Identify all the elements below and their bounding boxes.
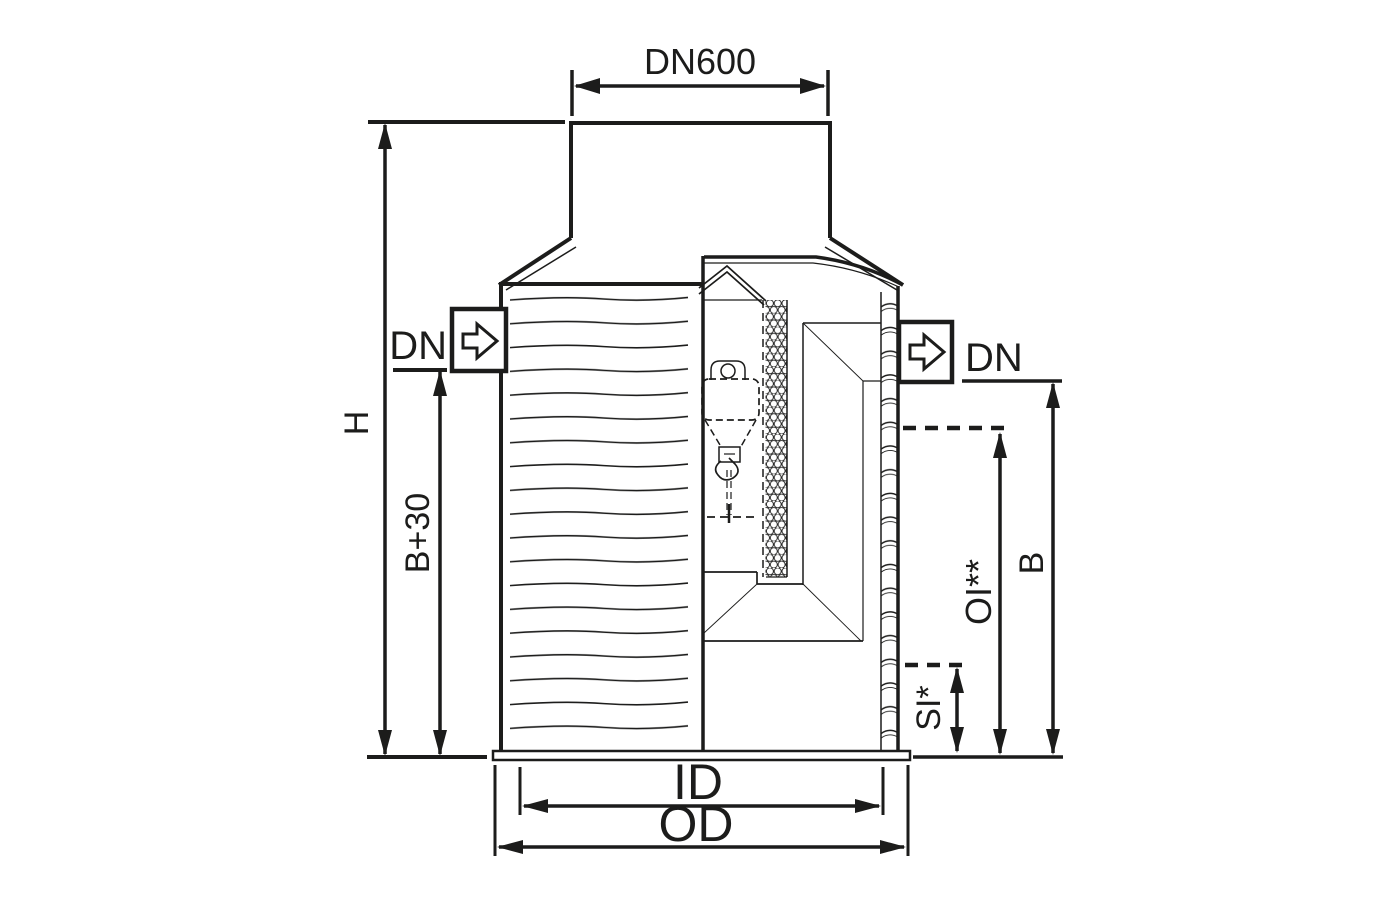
inlet-dn-label: DN [389,324,447,368]
inlet-connection [452,309,506,371]
drawing-canvas: DN600 H B+30 DN DN B OI** [0,0,1400,900]
dimension-b30: B+30 [393,370,447,756]
b-label: B [1013,552,1051,575]
corrugated-right-wall-ribs [881,294,898,746]
dn600-label: DN600 [644,41,756,82]
dimension-si: SI* [905,665,967,753]
h-label: H [338,411,376,436]
coalescing-filter-honeycomb [763,300,787,577]
oi-label: OI** [958,559,999,625]
outlet-connection [899,322,952,382]
b30-label: B+30 [399,493,437,573]
corrugated-wall-texture [506,293,693,743]
outlet-dn-label: DN [965,336,1023,380]
od-label: OD [659,796,734,852]
dimension-dn600: DN600 [572,41,828,116]
si-label: SI* [910,685,948,730]
separator-dimension-drawing: DN600 H B+30 DN DN B OI** [0,0,1400,900]
